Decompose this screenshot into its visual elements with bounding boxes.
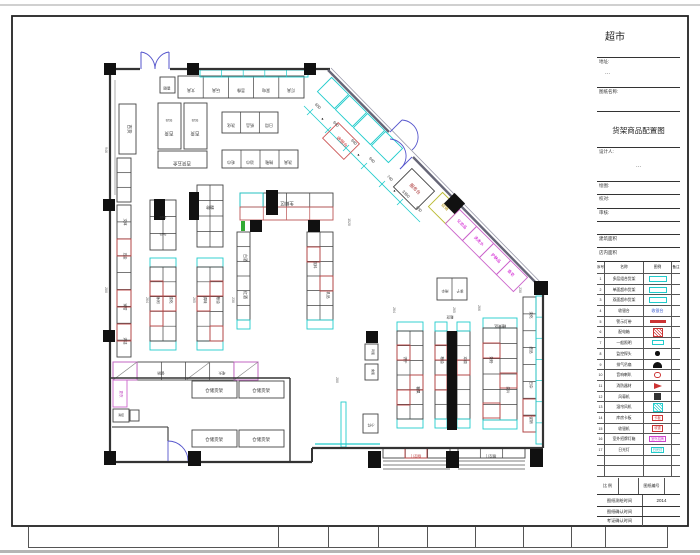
door-arc [141,52,155,69]
legend-sym [644,317,672,327]
address-value: ··· [605,71,610,77]
shelf-label: 鸡蛋 [371,349,376,355]
dim-text: 280 [335,377,339,383]
legend-no: 7 [597,338,605,348]
red-cell [150,281,163,296]
legend-symbol-pill-cyan [649,297,667,303]
door-label: 感应门 [410,454,421,459]
dim-text: 946 [104,147,108,153]
column [103,330,115,342]
shelf [184,103,207,149]
legend-no: 3 [597,295,605,305]
footer-cell [279,527,329,547]
center-block-cyan [240,193,263,207]
legend-no: 11 [597,381,605,391]
legend-header-note: 备注 [672,265,680,270]
legend-symbol-box-dark [654,393,661,400]
survey-date-label: 图纸测绘时间 [597,495,643,506]
legend-no: 15 [597,424,605,434]
check-date-value [643,517,680,526]
footer-cell [476,527,524,547]
scale-label: 比 例 [597,478,619,494]
column [308,220,320,232]
wall-bar [266,190,278,215]
legend-row: 7一般照明 [597,338,680,349]
legend-row: 3双面超市货架 [597,295,680,306]
end-cap [397,419,423,428]
green-mark [241,221,245,231]
legend-sym [644,295,672,305]
shelf-label: 纸品 [529,347,534,355]
shelf-label: 百货 [190,130,199,137]
dim-text: 266 [477,305,481,311]
designer-cell: 设计人: ··· [597,148,680,182]
shelf-label: 百货 [126,125,133,134]
shelf-label: 拖鞋 [265,160,273,166]
legend-row: 14库房卡板卡板 [597,413,680,424]
legend-name: 收银台 [605,306,644,316]
dim-text: 3350 [401,189,411,199]
legend-row: 2单面超市货架 [597,285,680,296]
address-cell: 地址: ··· [597,58,680,88]
legend-sym [644,285,672,295]
end-cap [483,420,517,429]
shelf-label: 促销 [157,371,164,376]
red-cell [397,390,410,405]
review-label: 审核: [599,210,609,216]
legend-no: 6 [597,327,605,337]
column [446,451,459,468]
legend-name: 排气吊扇 [605,360,644,370]
shelf-label: 雨伞 [441,289,449,294]
scale-value [619,478,639,494]
legend-row: 17日光灯日光灯 [597,445,680,456]
legend-sym [644,327,672,337]
shelf-label: 麦片 [506,387,511,395]
end-cap [237,320,250,329]
end-cap [435,322,447,331]
diag-label: 护肤品 [490,251,503,264]
legend-row: 4收银台收银台 [597,306,680,317]
dim-text: 230 [231,297,235,303]
column [366,331,378,343]
legend-symbol-hatch-cyan [653,403,663,412]
shelf-label: 调味 [203,297,208,305]
legend-name: 日光灯 [605,445,644,455]
shelf-label: 膨化 [169,297,174,305]
legend-header-no: 序号 [597,262,605,273]
designer-label: 设计人: [599,149,614,155]
footer-cell [572,527,606,547]
shelf-label: 纸品 [246,123,254,129]
shelf-label: 糖果区 [494,324,506,330]
dim-line [304,106,420,222]
diag-shelf [317,77,348,108]
legend-name: 消防器材 [605,381,644,391]
red-cell [483,403,500,418]
legend-no: 17 [597,445,605,455]
legend-symbol-pill-cyan-sm [652,340,664,345]
footer-strip [28,527,668,548]
legend-no: 2 [597,285,605,295]
diag-label: 香皂 [506,268,516,278]
dim-text: 264 [392,307,396,313]
proofread-label: 校对: [599,196,609,202]
legend-row: 13湿帘风机 [597,402,680,413]
arrow-mark: ▸ [357,152,362,157]
legend-name: 室外招牌灯箱 [605,434,644,444]
legend-no: 12 [597,392,605,402]
dim-text: 280 [104,287,108,293]
legend-no [597,456,605,466]
legend-name: 警示灯带 [605,317,644,327]
wall-strip [341,402,346,447]
legend-name: 单面超市货架 [605,285,644,295]
shelf-label: 奶粉 [489,357,494,365]
check-date-row: 考证确认时间 [597,517,680,526]
legend-sym [644,466,672,476]
diag-label: 洗发水 [473,234,486,247]
scale-row: 比 例 图纸编号 [597,478,680,495]
shelf-label: 945 [159,215,166,220]
legend-symbol-fan-black [653,362,662,367]
shelf-label: 945 [159,232,166,237]
legend-row: 11消防器材 [597,381,680,392]
legend-row: 10音响喇叭 [597,370,680,381]
shelf-pair [437,278,467,300]
cashier-label: 收银台 [335,135,350,150]
footer-cell [428,527,476,547]
legend-symbol-text-blue: 收银台 [652,308,664,314]
legend-name: 湿帘风机 [605,402,644,412]
blank-cell [597,222,680,235]
survey-date-value: 2014 [643,495,680,506]
shelf-label: 五金 [123,253,128,261]
end-cap [150,341,176,350]
footer-cell [524,527,572,547]
legend-row: 9排气吊扇 [597,360,680,371]
center-block-red [240,207,333,220]
legend-name: 音响喇叭 [605,370,644,380]
red-cell [435,375,447,390]
legend-sym [644,274,672,284]
shelf-label: 玩具 [212,88,220,94]
cad-sheet: 6509409409407403350650收银台服务台促销化妆品洗发水护肤品香… [0,0,700,555]
address-label: 地址: [599,59,609,65]
storage-label: 仓储货架 [205,387,223,394]
shelf-label: 饼干 [403,357,408,365]
legend-symbol-box-magenta: 室外招牌 [649,436,666,443]
end-cap [397,322,423,331]
arrow-mark: ▸ [321,116,326,121]
sheetname-label: 图纸名称: [599,89,618,95]
storage-label: 仓储货架 [252,436,270,443]
door-arc [168,441,188,461]
legend-sym: 日光灯 [644,445,672,455]
room-label: 消控 [118,412,124,417]
legend-name: 监控探头 [605,349,644,359]
shelf-label: 915 [165,118,172,123]
column [104,63,116,75]
dim-text: 264 [145,297,149,303]
column [250,220,262,232]
confirm-date-row: 图纸确认时间 [597,507,680,517]
storage-label: 仓储货架 [205,436,223,443]
shelf-label: 袜子 [456,289,464,294]
legend-name: 收银机 [605,424,644,434]
legend-sym: 室外招牌 [644,434,672,444]
gondola [197,185,223,247]
end-cap [150,258,176,267]
legend-name: 双面超市货架 [605,295,644,305]
wall-diagonal [413,157,543,290]
shelf-row [222,112,278,133]
column [530,449,543,467]
shelf-label: 粮油 [216,297,221,305]
shelf-label: 禽蛋 [371,369,376,375]
shelf-label: 灯具 [287,88,295,94]
legend-sym: 收银 [644,424,672,434]
legend-symbol-pill-cyan [649,276,667,282]
legend-sym [644,381,672,391]
wall-shelf-left [117,158,131,202]
shelf-label: 散称 [206,205,214,211]
drawing-title-cell: 货架商品配置图 [597,112,680,148]
shelf-label: 休闲 [156,297,161,305]
shelf [158,103,181,149]
legend-no: 13 [597,402,605,412]
legend-table: 序号 名称 图例 备注 1多层组合货架2单面超市货架3双面超市货架4收银台收银台… [597,262,680,477]
door-leaf [390,120,402,132]
wall-shelf-left [117,205,131,357]
red-cell [210,326,223,341]
legend-no: 10 [597,370,605,380]
shelf-label: 百货 [164,130,173,137]
sheet-number-value [665,478,680,494]
legend-no: 9 [597,360,605,370]
legend-name: 多层组合货架 [605,274,644,284]
shelf-label: 乳品 [326,292,331,300]
shelf-label: 日杂 [529,382,534,390]
legend-rows: 1多层组合货架2单面超市货架3双面超市货架4收银台收银台5警示灯带6配电箱7一般… [597,274,680,477]
shelf-label: 家电 [262,88,270,94]
title-block: 超市 地址: ··· 图纸名称: 货架商品配置图 设计人: ··· 绘图: 校对… [597,16,680,526]
shelf-label: 毛巾 [227,160,235,166]
shelf-label: 洗具 [284,160,292,166]
legend-no: 14 [597,413,605,423]
legend-name: 配电箱 [605,327,644,337]
column [104,451,116,465]
shelf-label: 小件 [367,423,375,428]
building-area-label: 建筑面积 [599,236,617,242]
legend-header: 序号 名称 图例 备注 [597,262,680,274]
building-area-cell: 建筑面积 [597,235,680,248]
shelf-label: 散货 [446,315,454,320]
wing-left [237,232,250,320]
check-date-label: 考证确认时间 [597,517,643,526]
proofread-cell: 校对: [597,195,680,208]
legend-symbol-box-red: 卡板 [652,415,662,422]
legend-symbol-pill-cyan [649,287,667,293]
legend-symbol-dot-black [655,351,660,356]
legend-symbol-box-red: 收银 [652,425,662,432]
room-label: 更衣 [119,391,124,399]
legend-no [597,466,605,476]
confirm-date-value [643,507,680,516]
legend-row: 16室外招牌灯箱室外招牌 [597,434,680,445]
shelf-label: 香烟 [163,86,170,91]
legend-row [597,456,680,467]
confirm-date-label: 图纸确认时间 [597,507,643,516]
review-cell: 审核: [597,209,680,222]
red-cell [307,247,320,262]
sheet-number-label: 图纸编号 [639,478,665,494]
legend-row: 6配电箱 [597,327,680,338]
shelf-label: 浴巾 [246,160,254,166]
legend-sym: 收银台 [644,306,672,316]
dim-text: 650 [415,205,424,214]
end-cap [457,322,470,331]
shelf-label: 白酒 [243,254,249,262]
legend-sym [644,402,672,412]
shelf-label: 粮油 [440,357,445,365]
legend-header-name: 名称 [605,262,644,273]
legend-sym [644,456,672,466]
legend-symbol-circle-red [654,372,661,379]
legend-name: 风幕机 [605,392,644,402]
dim-text: 265 [192,297,196,303]
legend-header-symbol: 图例 [644,262,672,273]
legend-row: 1多层组合货架 [597,274,680,285]
top-shelf-row [178,76,304,98]
column-diamond [444,193,465,214]
legend-symbol-box-cyan: 日光灯 [651,447,665,454]
shelf-label: 文具 [187,88,195,94]
wall-diagonal-line [331,68,546,288]
legend-sym: 卡板 [644,413,672,423]
shelf-label: 日用 [265,123,273,128]
dim-text: 650 [314,102,323,111]
legend-symbol-bar-red [650,320,666,324]
legend-name: 一般照明 [605,338,644,348]
red-cell [150,311,163,326]
end-cap [307,320,333,329]
end-cap [197,341,223,350]
shelf-label: 促销 [529,417,534,425]
small-room [130,410,139,421]
legend-symbol-wedge-red [654,383,662,389]
footer-cell [606,527,667,547]
diag-label: 化妆品 [456,217,469,230]
legend-name: 库房卡板 [605,413,644,423]
end-cap [457,419,470,428]
legend-row: 5警示灯带 [597,317,680,328]
shelf-label: 音像 [237,88,245,94]
wall-bar [189,192,199,220]
project-title-cell: 超市 [597,16,680,58]
dim-text: 940 [368,156,377,165]
dim-text: 230 [518,287,522,293]
end-cap [197,258,223,267]
footer-cell [29,527,279,547]
shelf-label: 冲调 [463,357,468,365]
legend-sym [644,360,672,370]
legend-row [597,466,680,477]
legend-no: 5 [597,317,605,327]
legend-row: 8监控探头 [597,349,680,360]
arrow-mark: ▸ [393,188,398,193]
column [103,199,115,211]
column [304,63,316,75]
legend-sym [644,392,672,402]
legend-sym [644,370,672,380]
legend-row: 12风幕机 [597,392,680,403]
end-cap [435,419,447,428]
red-cell [210,281,223,296]
wall-bar [447,331,457,430]
floor-plan: 6509409409407403350650收银台服务台促销化妆品洗发水护肤品香… [0,0,700,555]
door-arc [155,52,169,69]
storage-label: 仓储货架 [252,387,270,394]
store-area-label: 店内面积 [599,250,617,256]
legend-name [605,456,644,466]
shelf-label: 洗化 [529,312,534,320]
shelf-label: 堆头 [218,371,225,376]
shelf-label: 915 [191,118,198,123]
column [188,451,201,466]
project-title: 超市 [605,28,625,43]
survey-date-row: 图纸测绘时间 2014 [597,495,680,507]
shelf-label: 清洁 [123,338,128,346]
shelf-label: 洗化 [227,123,235,129]
legend-no: 16 [597,434,605,444]
footer-cell [379,527,428,547]
shelf-label: 饮料 [313,262,318,270]
draftsman-cell: 绘图: [597,182,680,195]
store-area-cell: 店内面积 [597,249,680,263]
drawing-title: 货架商品配置图 [597,125,680,136]
legend-no: 8 [597,349,605,359]
shelf-label: 百货五金 [173,160,191,167]
legend-no: 4 [597,306,605,316]
column [368,451,381,468]
shelf-label: 糖果 [416,387,421,395]
designer-value: ··· [597,164,680,170]
column [187,63,199,75]
footer-cell [329,527,379,547]
door-label: 推拉门 [485,454,496,459]
draftsman-label: 绘图: [599,183,609,189]
legend-no: 1 [597,274,605,284]
legend-sym [644,338,672,348]
dim-text: 265 [452,307,456,313]
legend-sym [644,349,672,359]
column [534,281,548,295]
shelf-label: 红酒 [243,291,249,299]
dim-text: 740 [386,174,395,183]
sheetname-label-cell: 图纸名称: [597,88,680,112]
shelf-label: 家居 [123,304,128,312]
shelf-label: 文体 [123,219,128,226]
legend-name [605,466,644,476]
legend-row: 15收银机收银 [597,424,680,435]
red-cell [320,276,333,291]
dim-text: 1520 [347,218,351,226]
red-cell [523,399,536,416]
legend-symbol-hatch-red [653,328,663,337]
shelf-label: 生鲜区 [280,200,294,207]
door-arc [402,120,418,150]
